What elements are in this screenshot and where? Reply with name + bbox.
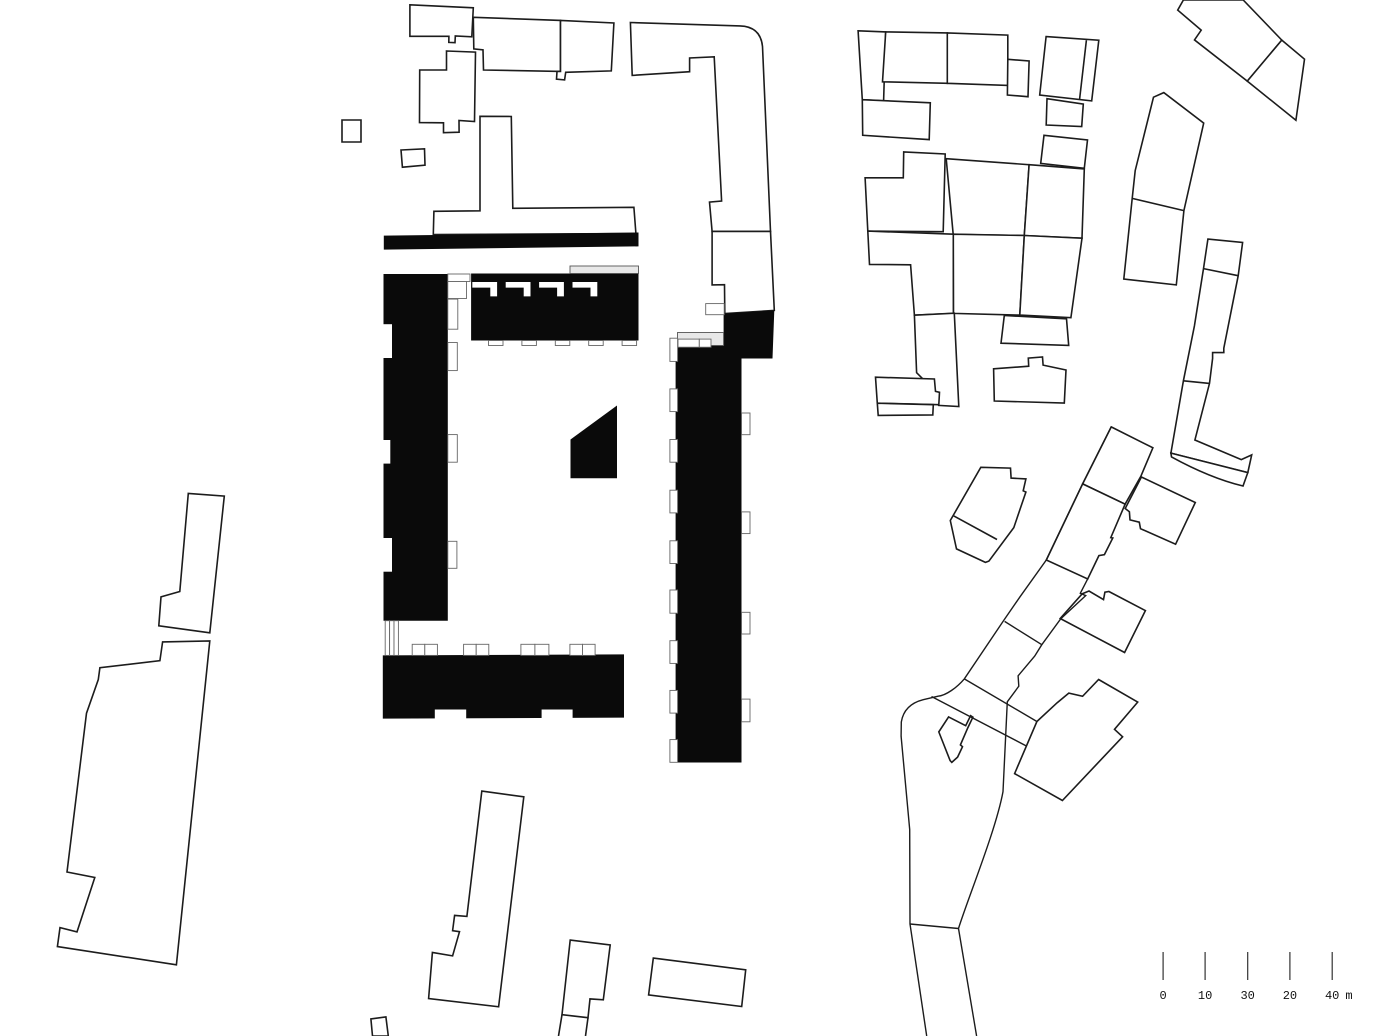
- svg-text:10: 10: [1198, 989, 1212, 1003]
- svg-text:20: 20: [1283, 989, 1297, 1003]
- svg-text:0: 0: [1159, 989, 1166, 1003]
- svg-text:40: 40: [1325, 989, 1339, 1003]
- svg-text:30: 30: [1240, 989, 1254, 1003]
- svg-text:m: m: [1345, 989, 1352, 1003]
